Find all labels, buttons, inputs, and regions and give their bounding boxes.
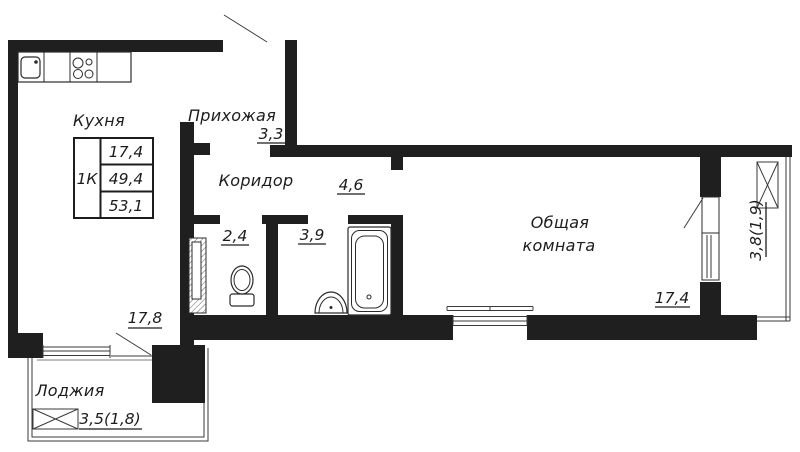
wall-corridor-pillar (391, 145, 403, 170)
wall-loggia-chunk (152, 345, 205, 403)
legend-row-2: 49,4 (109, 170, 144, 188)
loggia-label: Лоджия (34, 381, 104, 400)
corridor-area: 4,6 (339, 176, 364, 194)
kitchen-sink-icon (21, 57, 40, 78)
hallway-area: 3,3 (259, 125, 284, 143)
floor-plan-drawing: 1К 17,4 49,4 53,1 Кухня 17,8 Прихожая 3,… (0, 0, 800, 452)
wc-area: 2,4 (223, 227, 248, 245)
corridor-label: Коридор (219, 171, 294, 190)
bathtub-icon (348, 227, 391, 315)
floor-plan: 1К 17,4 49,4 53,1 Кухня 17,8 Прихожая 3,… (0, 0, 800, 452)
wall-top (10, 40, 223, 52)
wall-top-long (270, 145, 792, 157)
kitchen-label: Кухня (73, 111, 125, 130)
wall-balcony-pillar-top (700, 157, 721, 197)
bathroom-area: 3,9 (300, 226, 325, 244)
legend-row-3: 53,1 (109, 197, 144, 215)
wall-hallway-right (285, 40, 297, 157)
toilet-icon (230, 266, 254, 306)
kitchen-area: 17,8 (128, 309, 163, 327)
wall-stub-hallway (192, 143, 210, 155)
kitchen-window-icon (43, 345, 110, 358)
legend-row-1: 17,4 (109, 143, 144, 161)
legend-type: 1К (77, 170, 99, 188)
living-room-label-1: Общая (531, 213, 590, 232)
wall-balcony-pillar-bottom (700, 282, 721, 315)
wall-kitchen-right (180, 122, 194, 348)
living-room-area: 17,4 (655, 289, 690, 307)
vent-shaft-icon (189, 238, 206, 313)
balcony-area: 3,8(1,9) (747, 199, 765, 260)
wall-wc-top-1 (190, 215, 220, 224)
hallway-label: Прихожая (188, 106, 276, 125)
wall-bath-right (391, 215, 403, 315)
loggia-area: 3,5(1,8) (79, 410, 140, 428)
living-room-label-2: комната (522, 236, 595, 255)
wall-left (8, 40, 18, 358)
wall-wc-bath-divider (266, 215, 278, 315)
wall-kitchen-bottom-corner (8, 333, 43, 358)
kitchen-counter (18, 52, 131, 82)
